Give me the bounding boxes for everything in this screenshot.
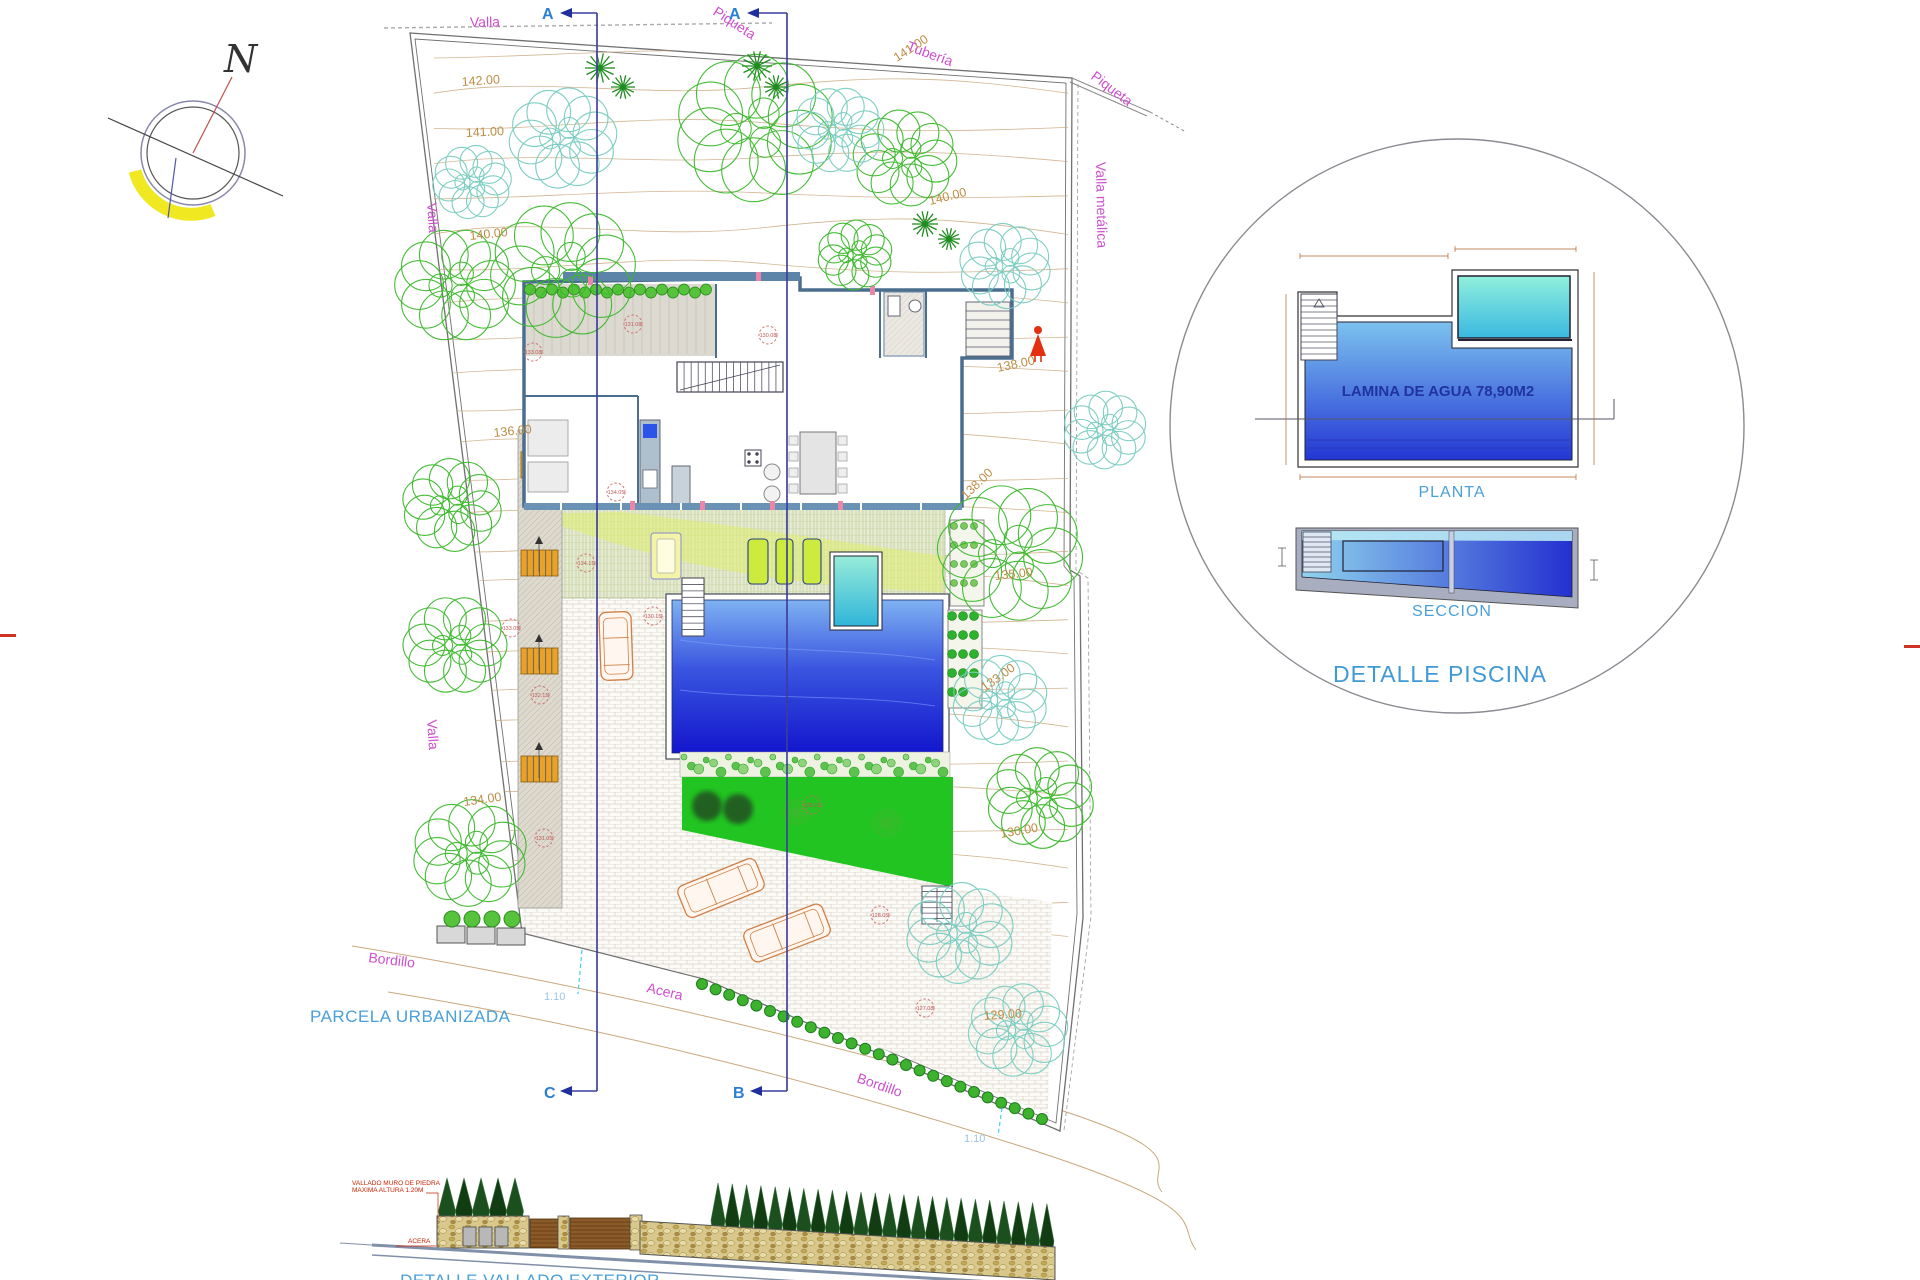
section-arrow (750, 1086, 762, 1096)
plant (948, 631, 957, 640)
chair (838, 484, 847, 493)
scale-note-right: 1.10 (964, 1133, 985, 1145)
shrub (827, 764, 837, 774)
valla-left-upper-label: Valla (424, 202, 442, 233)
pool-detail: LAMINA DE AGUA 78,90M2 PLANTA SECCION DE… (1170, 139, 1744, 713)
plant (971, 580, 978, 587)
chair (838, 436, 847, 445)
shrub (738, 764, 748, 774)
section-b: B (733, 1085, 745, 1102)
hedge-bush (873, 1049, 884, 1060)
sun-lounger (803, 539, 821, 584)
shrub (760, 767, 770, 777)
shrub (903, 754, 909, 760)
fence-note-line1: VALLADO MURO DE PIEDRA (352, 1180, 441, 1187)
chair (838, 468, 847, 477)
sink (643, 470, 657, 488)
hedge-bush (1009, 1103, 1020, 1114)
dining-table (800, 432, 836, 494)
bush (484, 911, 500, 927)
shrub (925, 757, 931, 763)
contour-label: 134.00 (462, 790, 502, 809)
pool-section-view: SECCION (1278, 528, 1598, 620)
north-label: N (223, 37, 259, 81)
shrub (710, 759, 718, 767)
bush (464, 911, 480, 927)
pool-stairs (1301, 294, 1337, 360)
shrub (887, 759, 895, 767)
bush (504, 911, 520, 927)
hedge-bush (982, 1092, 993, 1103)
cypress-tree (507, 1178, 524, 1222)
plant (959, 631, 968, 640)
sun-lounger (776, 539, 793, 584)
hedge-bush (996, 1097, 1007, 1108)
section-arrow (560, 1086, 572, 1096)
door-mark (770, 501, 775, 510)
pillar (558, 1216, 569, 1249)
pool-plan-view: LAMINA DE AGUA 78,90M2 PLANTA (1255, 246, 1614, 501)
hedge-bush (819, 1027, 830, 1038)
fence-acera-label: ACERA (408, 1238, 431, 1245)
section-a-right: A (729, 6, 741, 23)
contour-label: 129.00 (983, 1006, 1022, 1023)
shrub (716, 767, 726, 777)
shrub (748, 757, 754, 763)
plant (948, 688, 957, 697)
seccion-label: SECCION (1412, 603, 1492, 620)
chair (789, 436, 798, 445)
plant (948, 650, 957, 659)
contour-label: 141.00 (465, 124, 504, 140)
spot-elevation-value: 127.08 (917, 1006, 934, 1012)
spot-elevation-value: 131.08 (625, 322, 642, 328)
utility-panel (463, 1227, 476, 1246)
site-plan-drawing: 133.08131.08130.08134.05134.15133.05130.… (0, 0, 1920, 1280)
plant (959, 650, 968, 659)
cypress-tree (456, 1178, 473, 1222)
hedge-bush (751, 1000, 762, 1011)
plant (948, 612, 957, 621)
valla-left-lower-label: Valla (424, 719, 442, 750)
hedge-bush (710, 984, 721, 995)
plant (951, 561, 958, 568)
valla-dashed-line (384, 23, 772, 28)
spot-elevation-value: 130.08 (760, 333, 777, 339)
contour-label: 142.00 (461, 72, 500, 89)
section-c: C (544, 1085, 556, 1102)
plant (961, 523, 968, 530)
hedge-bush (765, 1005, 776, 1016)
section-arrow (747, 8, 759, 18)
compass-rose: N (108, 37, 283, 218)
scale-note-left: 1.10 (544, 991, 565, 1003)
hedge-bush (914, 1065, 925, 1076)
plant (959, 612, 968, 621)
hedge-bush (679, 284, 690, 295)
shrub (694, 764, 704, 774)
spot-elevation-value: 131.05 (536, 836, 553, 842)
hedge-bush (833, 1032, 844, 1043)
shrub (770, 754, 776, 760)
door-mark (700, 501, 705, 510)
detalle-piscina-title: DETALLE PISCINA (1333, 661, 1547, 687)
fence-note-line2: MAXIMA ALTURA 1.20M (352, 1187, 423, 1194)
cypress-tree (439, 1178, 456, 1222)
hedge-bush (569, 284, 580, 295)
utility-panel (495, 1227, 508, 1246)
sun-lounger (748, 539, 768, 584)
south-glazing (524, 503, 962, 510)
chair (789, 484, 798, 493)
hedge-bush (697, 979, 708, 990)
hedge-bush (955, 1081, 966, 1092)
hedge-bush (846, 1038, 857, 1049)
plant (948, 669, 957, 678)
bush (444, 911, 460, 927)
valla-top-label: Valla (470, 13, 501, 30)
annex-boxes (437, 911, 525, 945)
chair (838, 452, 847, 461)
spot-elevation-value: 133.08 (525, 350, 542, 356)
stove (745, 450, 761, 466)
spot-elevation-value: 133.05 (503, 626, 520, 632)
door-mark (630, 501, 635, 510)
hedge-bush (1023, 1108, 1034, 1119)
edge-mark-left (0, 634, 16, 637)
hedge-bush (901, 1059, 912, 1070)
shrub (703, 757, 709, 763)
water-area-label: LAMINA DE AGUA 78,90M2 (1342, 383, 1535, 400)
shrub (843, 759, 851, 767)
hedge-bush (690, 287, 701, 298)
hedge-bush (668, 287, 679, 298)
spot-elevation-value: 134.05 (608, 490, 625, 496)
spot-elevation-value: 128.15 (804, 803, 821, 809)
hedge-bush (928, 1070, 939, 1081)
shrub (859, 754, 865, 760)
plant (961, 561, 968, 568)
edge-mark-right (1904, 645, 1920, 648)
tuberia-label: Tubería (905, 38, 956, 69)
hedge-bush (805, 1022, 816, 1033)
hedge-bush (969, 1086, 980, 1097)
spot-elevation-value: 128.05 (872, 913, 889, 919)
cypress-tree (490, 1178, 507, 1222)
parcela-label: PARCELA URBANIZADA (310, 1007, 511, 1026)
utility-panel (479, 1227, 492, 1246)
wood-gate (570, 1218, 630, 1249)
fridge (643, 424, 657, 438)
car (599, 611, 633, 680)
pool-teal-section (834, 556, 878, 626)
shrub (725, 754, 731, 760)
section-arrow (560, 8, 572, 18)
hedge-bush (1037, 1113, 1048, 1124)
shrub (754, 759, 762, 767)
hedge-bush (646, 287, 657, 298)
plant (970, 631, 979, 640)
plant (970, 650, 979, 659)
fence-detail-title: DETALLE VALLADO EXTERIOR (400, 1271, 660, 1280)
shrub (894, 767, 904, 777)
shrub (805, 767, 815, 777)
shrub (798, 759, 806, 767)
hedge-bush (635, 284, 646, 295)
spot-elevation-value: 134.15 (578, 561, 595, 567)
plant (951, 580, 958, 587)
shrub (881, 757, 887, 763)
hedge-bush (737, 995, 748, 1006)
shrub (932, 759, 940, 767)
shrub (849, 767, 859, 777)
bordillo-left-label: Bordillo (368, 949, 417, 971)
hedge-bush (860, 1043, 871, 1054)
hedge-bush (701, 284, 712, 295)
fence-detail: VALLADO MURO DE PIEDRA MAXIMA ALTURA 1.2… (340, 1178, 1096, 1280)
hedge-bush (724, 989, 735, 1000)
door-mark (756, 272, 761, 281)
hedge-bush (887, 1054, 898, 1065)
valla-metalica-label: Valla metálica (1093, 162, 1111, 249)
door-mark (870, 286, 875, 295)
hedge-bush (657, 284, 668, 295)
door-mark (838, 501, 843, 510)
cypress-tree (473, 1178, 490, 1222)
chair (789, 452, 798, 461)
shrub (938, 767, 948, 777)
section-a-left: A (542, 6, 554, 23)
pool-access-stair (682, 578, 704, 636)
planta-label: PLANTA (1418, 484, 1485, 501)
main-stair (677, 362, 783, 392)
hedge-bush (792, 1016, 803, 1027)
shrub (916, 764, 926, 774)
shrub (871, 764, 881, 774)
shrub (681, 754, 687, 760)
acera-label: Acera (645, 979, 684, 1003)
chair (789, 468, 798, 477)
hedge-bush (941, 1076, 952, 1087)
spot-elevation-value: 130.15 (645, 614, 662, 620)
shrub (814, 754, 820, 760)
spot-elevation-value: 132.15 (532, 693, 549, 699)
shrub (792, 757, 798, 763)
raised-pool (1458, 276, 1570, 338)
bordillo-bottom-label: Bordillo (855, 1070, 905, 1100)
shrub (836, 757, 842, 763)
